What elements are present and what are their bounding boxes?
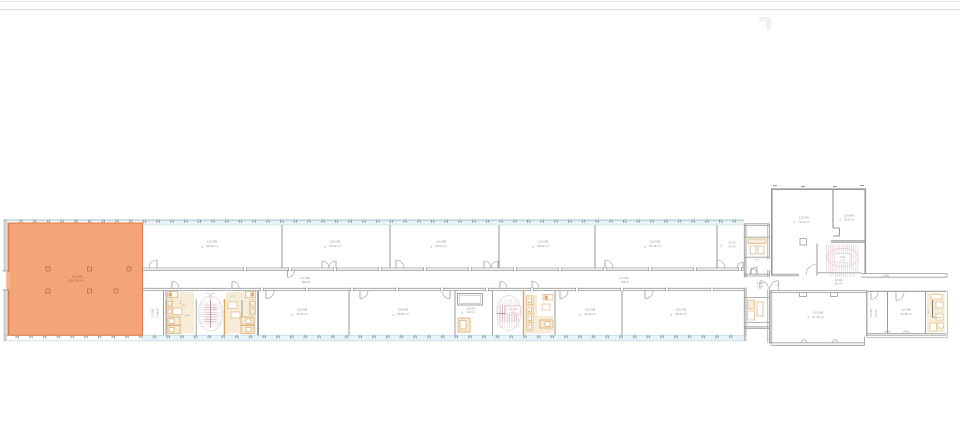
svg-text:8.00 m²: 8.00 m² [467, 311, 475, 314]
svg-text:2.008: 2.008 [211, 309, 217, 311]
svg-text:80.06 m²: 80.06 m² [206, 244, 217, 248]
svg-text:105.048: 105.048 [509, 309, 518, 311]
svg-text:105.009: 105.009 [467, 308, 476, 311]
svg-text:9.79 m²: 9.79 m² [875, 309, 878, 317]
svg-text:30.09 m²: 30.09 m² [844, 218, 855, 222]
svg-text:0 4.009: 0 4.009 [620, 276, 629, 280]
svg-text:72.12 m²: 72.12 m² [798, 220, 809, 224]
svg-text:110.008: 110.008 [152, 308, 155, 317]
svg-text:2.030: 2.030 [840, 257, 846, 259]
svg-text:22.06: 22.06 [510, 312, 516, 314]
svg-text:214.040: 214.040 [844, 214, 854, 218]
svg-text:59.04 m²: 59.04 m² [397, 312, 408, 316]
svg-text:560.01: 560.01 [302, 280, 311, 284]
svg-text:95.06 m²: 95.06 m² [675, 312, 686, 316]
svg-text:459.47: 459.47 [621, 280, 630, 284]
svg-text:70.06 m²: 70.06 m² [296, 312, 307, 316]
svg-text:18.6 m²: 18.6 m² [834, 283, 842, 286]
svg-text:0 4.008: 0 4.008 [301, 276, 310, 280]
svg-text:21.70: 21.70 [840, 260, 846, 262]
svg-text:213.080: 213.080 [871, 308, 873, 317]
svg-text:1.43 m²: 1.43 m² [728, 246, 736, 249]
svg-text:41.42 m²: 41.42 m² [584, 312, 595, 316]
svg-text:48.02 m²: 48.02 m² [537, 244, 548, 248]
svg-text:4.040: 4.040 [883, 276, 889, 278]
svg-text:14.66 m²: 14.66 m² [157, 308, 160, 318]
svg-text:61.46 m²: 61.46 m² [649, 244, 660, 248]
svg-text:97.15 m²: 97.15 m² [812, 315, 823, 319]
svg-text:54.52 m²: 54.52 m² [329, 244, 340, 248]
svg-text:x 2.1: x 2.1 [775, 285, 781, 287]
svg-text:107.58 m²: 107.58 m² [70, 279, 83, 283]
svg-text:117.00: 117.00 [728, 242, 736, 245]
svg-text:54.63 m²: 54.63 m² [435, 244, 446, 248]
svg-text:18.48 m²: 18.48 m² [900, 312, 911, 316]
